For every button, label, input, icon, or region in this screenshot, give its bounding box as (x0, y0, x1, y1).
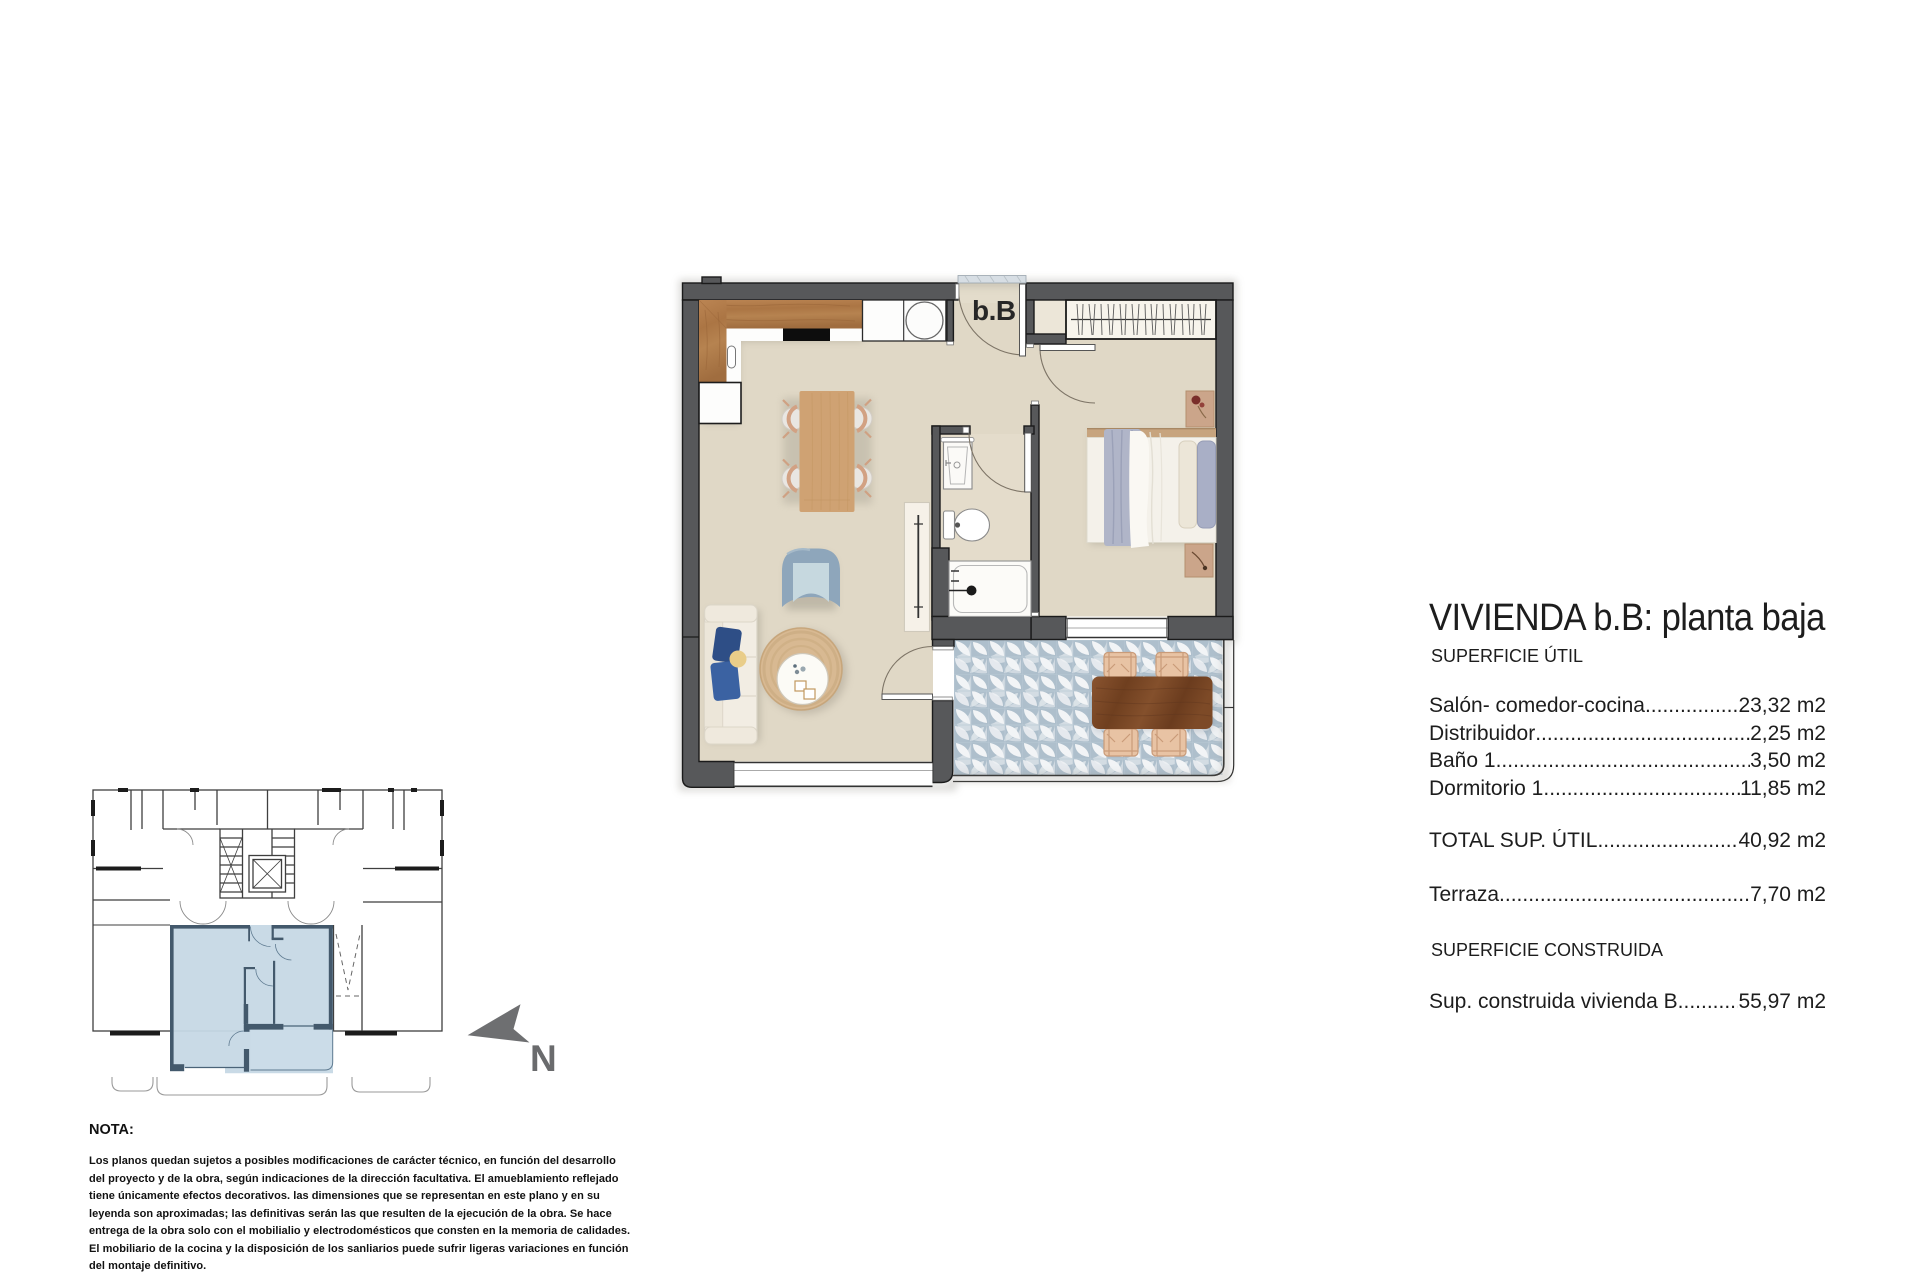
svg-text:N: N (530, 1038, 557, 1079)
